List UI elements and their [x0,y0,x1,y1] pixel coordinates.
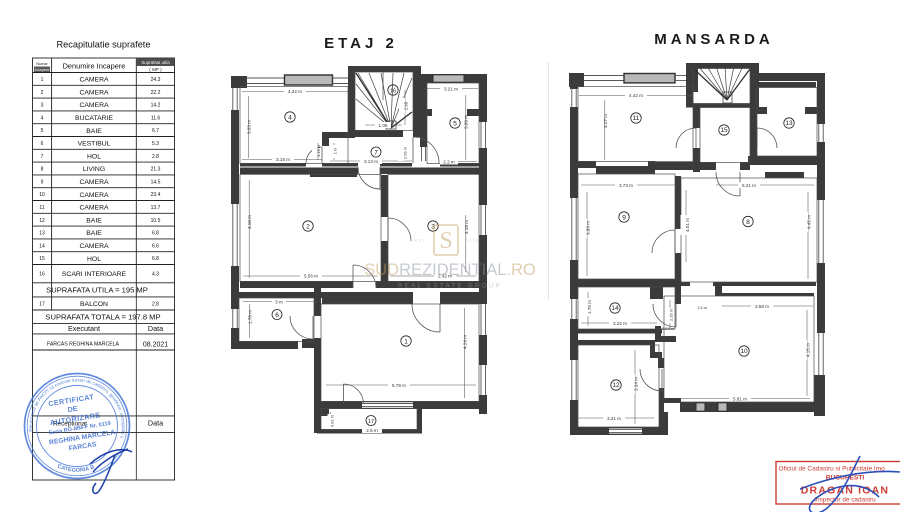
svg-text:4: 4 [41,115,44,121]
svg-text:14: 14 [611,305,619,312]
svg-text:SUDREZIDENTIAL.RO: SUDREZIDENTIAL.RO [364,261,536,279]
svg-text:11: 11 [633,115,640,122]
svg-text:23.4: 23.4 [151,192,161,198]
svg-text:22.2: 22.2 [151,90,161,96]
svg-text:( MP ): ( MP ) [149,67,162,72]
svg-text:BUCATARIE: BUCATARIE [75,115,113,122]
svg-text:6.8: 6.8 [152,231,159,237]
svg-text:5.78 m: 5.78 m [392,383,406,388]
svg-text:16: 16 [39,272,45,278]
svg-text:9: 9 [41,179,44,185]
svg-text:17: 17 [39,302,45,308]
svg-text:13.7: 13.7 [151,205,161,211]
svg-text:ETAJ 2: ETAJ 2 [324,35,398,52]
svg-text:5: 5 [453,120,457,127]
svg-text:3.13 m: 3.13 m [364,159,378,164]
svg-text:3.09 m: 3.09 m [464,115,469,129]
svg-text:6.6: 6.6 [152,243,159,249]
svg-text:4.3: 4.3 [152,272,159,278]
svg-text:8: 8 [746,219,750,226]
svg-text:6: 6 [275,312,279,319]
svg-text:4.18 m: 4.18 m [247,215,252,229]
svg-text:1.5 m: 1.5 m [697,305,707,310]
svg-text:9: 9 [622,215,626,222]
svg-text:12: 12 [39,218,45,224]
svg-text:2.2 m: 2.2 m [443,159,455,164]
svg-text:S: S [439,228,452,254]
svg-text:DE: DE [67,404,78,414]
svg-text:CAMERA: CAMERA [79,205,109,212]
svg-text:3.58 m: 3.58 m [755,304,769,309]
svg-text:CAMERA: CAMERA [79,89,109,96]
svg-text:CAMERA: CAMERA [79,192,109,199]
svg-text:BALCON: BALCON [80,301,108,308]
svg-text:13: 13 [39,231,45,237]
svg-text:1: 1 [41,77,44,83]
svg-text:SUPRAFATA UTILA = 195 MP: SUPRAFATA UTILA = 195 MP [46,286,148,295]
svg-text:4.15 m: 4.15 m [464,220,469,234]
svg-text:2.99: 2.99 [404,101,409,110]
svg-text:CAMERA: CAMERA [79,77,109,84]
svg-text:1.75 m: 1.75 m [587,300,592,314]
svg-text:4.15 m: 4.15 m [806,343,811,357]
svg-text:12: 12 [612,382,620,389]
svg-text:3.89 m: 3.89 m [586,221,591,235]
svg-text:HOL: HOL [87,153,101,160]
svg-text:Suprafata utila: Suprafata utila [141,60,170,65]
svg-text:1 m: 1 m [333,148,338,155]
svg-text:8: 8 [41,167,44,173]
svg-text:FARCAS REGHINA MARCELA: FARCAS REGHINA MARCELA [47,342,120,348]
svg-text:3.03 m: 3.03 m [247,120,252,134]
svg-text:3.73 m: 3.73 m [619,183,633,188]
svg-text:1.05: 1.05 [379,123,388,128]
svg-text:7: 7 [41,154,44,160]
svg-text:3: 3 [41,103,44,109]
svg-text:21.3: 21.3 [151,167,161,173]
svg-text:11.6: 11.6 [151,115,161,121]
svg-text:2.8: 2.8 [152,302,159,308]
svg-text:0.81 m: 0.81 m [330,415,335,427]
svg-text:5.21 m: 5.21 m [742,183,756,188]
svg-text:EST: EST [414,238,426,243]
svg-text:2: 2 [306,223,310,230]
svg-text:CAMERA: CAMERA [79,243,109,250]
svg-text:3 m: 3 m [275,299,283,304]
svg-text:MANSARDA: MANSARDA [654,31,774,48]
svg-text:SCARI INTERIOARE: SCARI INTERIOARE [62,271,127,278]
svg-text:3.18 m: 3.18 m [276,157,290,162]
svg-text:Denumire Incapere: Denumire Incapere [63,62,126,71]
svg-text:CAMERA: CAMERA [79,102,109,109]
svg-text:BAIE: BAIE [86,128,102,135]
svg-text:3.21 m: 3.21 m [607,416,621,421]
svg-text:4.22 m: 4.22 m [288,89,302,94]
svg-text:Numar: Numar [36,62,48,66]
svg-text:6.8: 6.8 [152,256,159,262]
svg-text:08.2021: 08.2021 [143,342,168,349]
svg-text:3.27 m: 3.27 m [603,114,608,128]
svg-text:Inspector de cadastru: Inspector de cadastru [814,497,876,504]
svg-text:10: 10 [740,348,748,355]
svg-text:24.3: 24.3 [151,77,161,83]
svg-text:2.06 m: 2.06 m [403,147,408,159]
svg-text:6: 6 [41,141,44,147]
svg-text:4.42 m: 4.42 m [629,93,643,98]
svg-text:15: 15 [720,127,728,134]
svg-text:14.2: 14.2 [151,103,161,109]
svg-text:4.24 m: 4.24 m [463,335,468,349]
svg-text:17: 17 [368,419,374,425]
svg-text:5: 5 [41,128,44,134]
svg-text:LIVING: LIVING [83,166,105,173]
svg-text:15: 15 [39,256,45,262]
svg-text:VESTIBUL: VESTIBUL [78,141,111,148]
svg-text:Executant: Executant [68,324,100,333]
svg-text:2.8: 2.8 [152,154,159,160]
svg-text:REAL ESTATE GROUP: REAL ESTATE GROUP [398,283,502,290]
svg-text:1: 1 [404,338,408,345]
svg-text:2.26 m: 2.26 m [669,309,674,321]
svg-text:0.54 m: 0.54 m [662,326,674,331]
svg-text:6.7: 6.7 [152,128,159,134]
svg-text:2.5 m: 2.5 m [366,428,378,433]
svg-text:HOL: HOL [87,256,101,263]
svg-text:BAIE: BAIE [86,217,102,224]
svg-text:14: 14 [39,243,45,249]
svg-text:SUPRAFATA TOTALA = 197.8 MP: SUPRAFATA TOTALA = 197.8 MP [45,313,160,322]
svg-text:10.5: 10.5 [151,218,161,224]
svg-text:3.22 m: 3.22 m [613,321,627,326]
svg-text:1.19 m: 1.19 m [316,145,321,157]
svg-text:2016: 2016 [465,238,479,243]
svg-text:5.3: 5.3 [152,141,159,147]
svg-text:14.5: 14.5 [151,179,161,185]
svg-text:Data: Data [148,419,163,428]
svg-text:3.21 m: 3.21 m [444,86,458,91]
svg-text:13: 13 [785,120,793,127]
svg-text:Data: Data [148,324,163,333]
svg-text:10: 10 [39,192,45,198]
svg-text:2: 2 [41,90,44,96]
svg-text:Recapitulatie suprafete: Recapitulatie suprafete [57,40,151,50]
svg-text:16: 16 [390,88,396,94]
svg-text:1.78 m: 1.78 m [248,310,253,324]
svg-text:11: 11 [39,205,44,211]
svg-text:BAIE: BAIE [86,230,102,237]
svg-text:CAMERA: CAMERA [79,179,109,186]
svg-text:4: 4 [288,114,292,121]
svg-text:3.34 m: 3.34 m [634,377,639,391]
svg-text:4.45 m: 4.45 m [807,215,812,229]
svg-text:7: 7 [374,149,378,156]
svg-text:Incapere: Incapere [35,68,50,72]
svg-text:5.56 m: 5.56 m [304,273,318,278]
svg-text:5.81 m: 5.81 m [733,396,747,401]
svg-text:4.01 m: 4.01 m [685,218,690,232]
